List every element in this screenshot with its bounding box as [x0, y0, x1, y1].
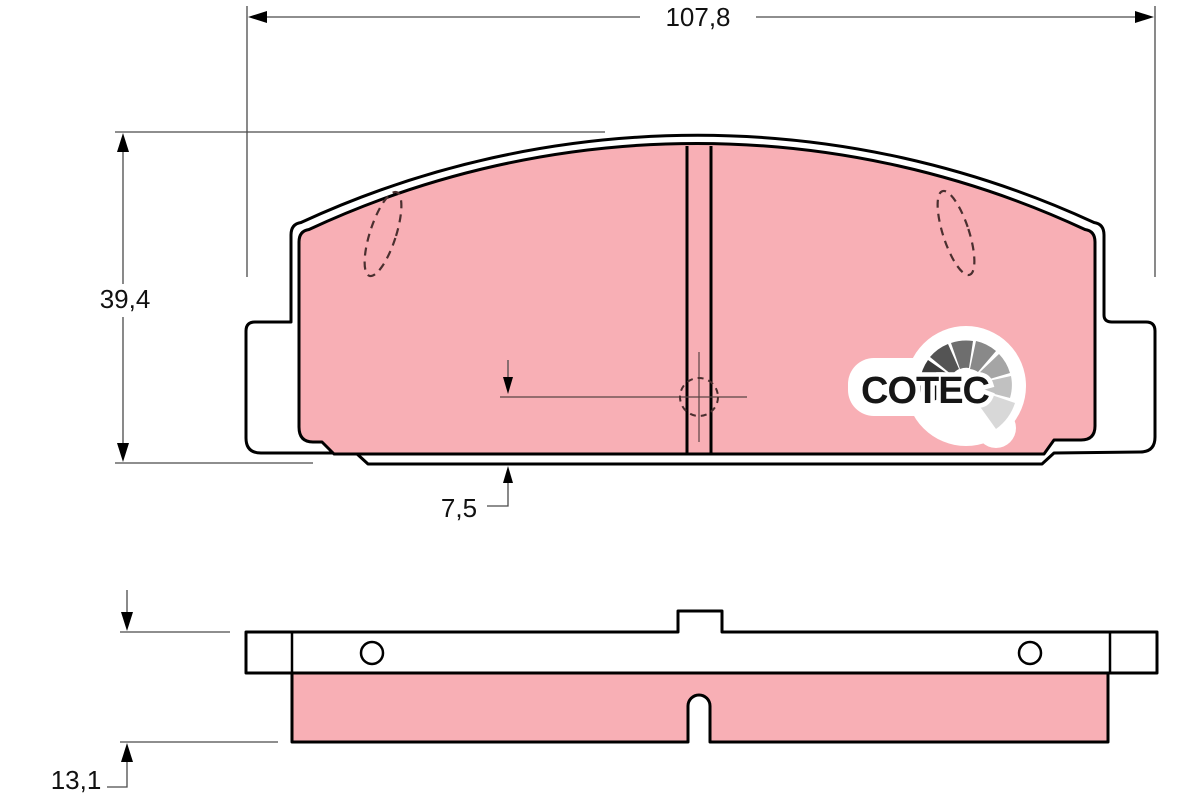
- thickness-value: 13,1: [51, 765, 102, 795]
- arrowhead-up: [503, 466, 513, 483]
- arrowhead-left: [248, 11, 267, 23]
- dimension-thickness: 13,1: [51, 590, 278, 795]
- dimension-wear-limit: 7,5: [441, 466, 513, 523]
- logo-text: COTEC: [861, 370, 990, 412]
- drawing-area: 107,8 39,4 7,5 COTEC: [0, 0, 1200, 800]
- leader-line: [107, 761, 127, 787]
- overall-height-value: 39,4: [100, 284, 151, 314]
- arrowhead-top: [117, 133, 129, 152]
- rivet-hole-right: [1019, 642, 1041, 664]
- arrowhead-right: [1135, 11, 1154, 23]
- side-backing-plate: [246, 611, 1157, 673]
- leader-line: [487, 482, 508, 506]
- wear-limit-value: 7,5: [441, 493, 477, 523]
- arrowhead-up: [121, 743, 133, 762]
- overall-width-value: 107,8: [665, 2, 730, 32]
- technical-drawing-canvas: 107,8 39,4 7,5 COTEC: [0, 0, 1200, 800]
- side-view: [246, 611, 1157, 742]
- side-friction-material: [292, 673, 1108, 742]
- arrowhead-bottom: [117, 443, 129, 462]
- rivet-hole-left: [361, 642, 383, 664]
- arrowhead-down: [121, 612, 133, 631]
